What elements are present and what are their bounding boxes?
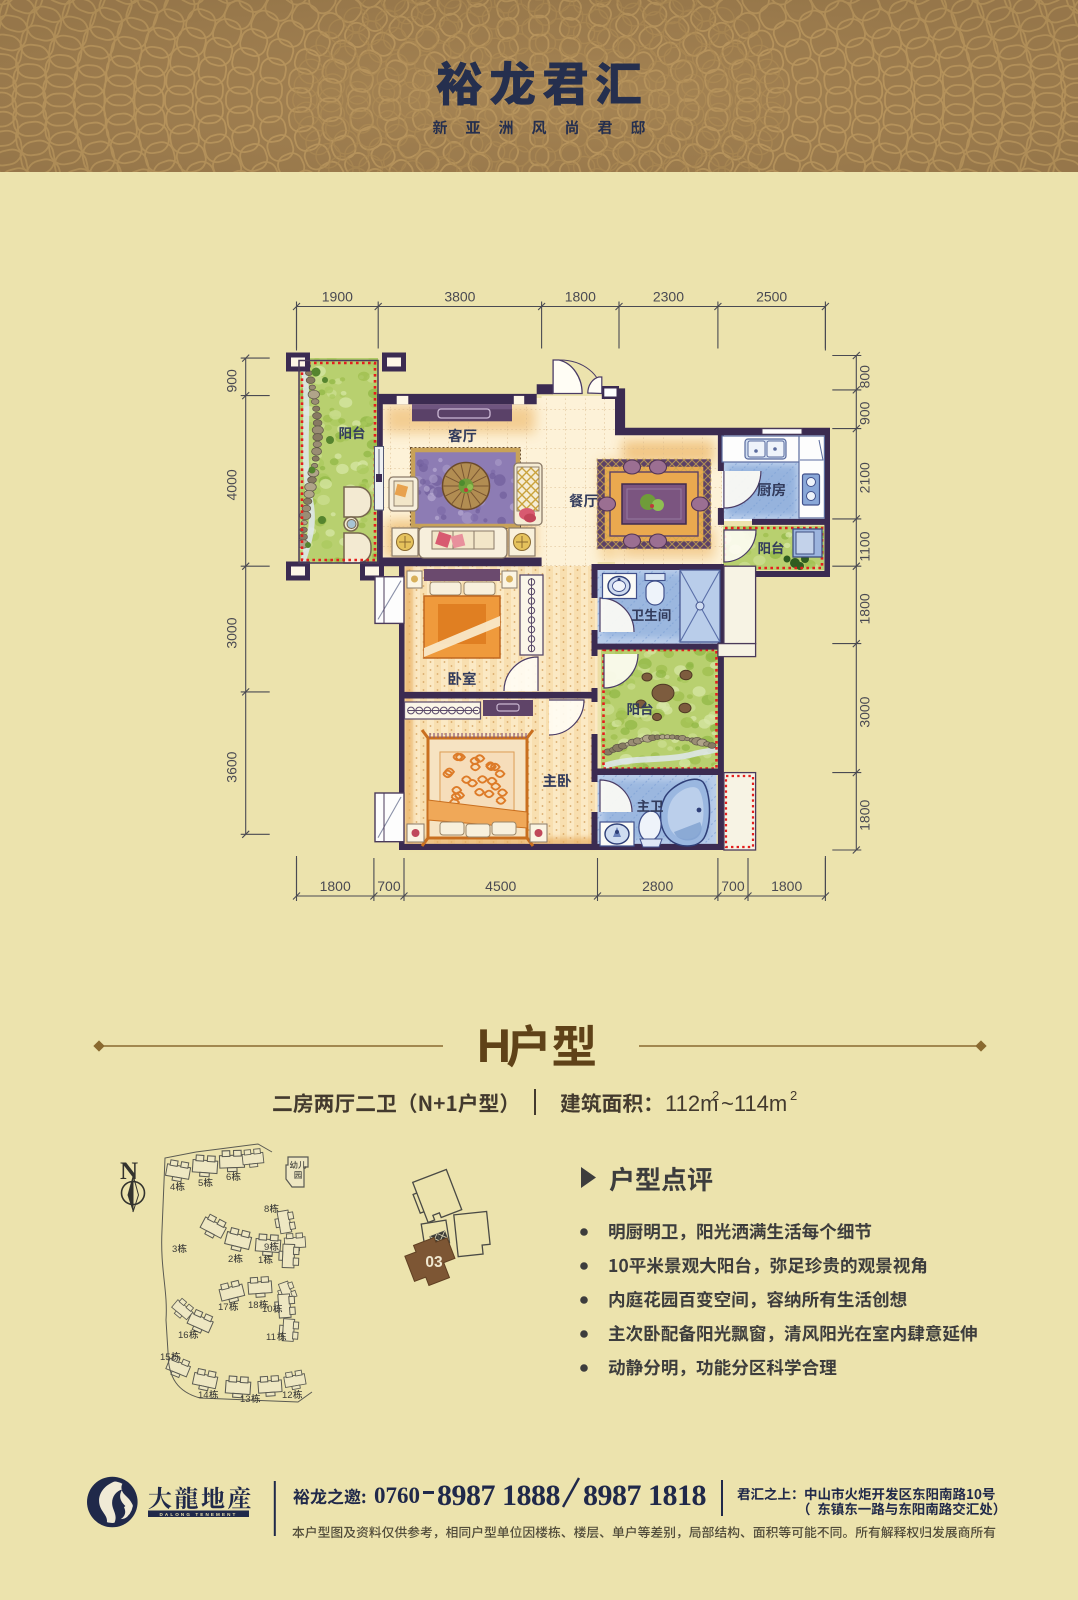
svg-text:8: 8 bbox=[264, 1204, 269, 1215]
svg-text:2500: 2500 bbox=[756, 289, 787, 305]
svg-text:H: H bbox=[477, 1019, 511, 1072]
svg-text:1900: 1900 bbox=[322, 289, 353, 305]
svg-text:14: 14 bbox=[198, 1390, 209, 1401]
svg-text:DALONG TENEMENT: DALONG TENEMENT bbox=[160, 1512, 238, 1517]
svg-text:4500: 4500 bbox=[485, 878, 516, 894]
svg-text:800: 800 bbox=[856, 365, 872, 389]
svg-text:~114m: ~114m bbox=[721, 1091, 787, 1116]
svg-text:900: 900 bbox=[856, 401, 872, 425]
svg-text:5: 5 bbox=[198, 1178, 203, 1189]
svg-text:1: 1 bbox=[258, 1255, 263, 1266]
svg-text:12: 12 bbox=[282, 1390, 293, 1401]
svg-text:13: 13 bbox=[240, 1394, 251, 1405]
svg-text:700: 700 bbox=[721, 878, 745, 894]
svg-text:0760: 0760 bbox=[374, 1483, 420, 1508]
svg-text:700: 700 bbox=[377, 878, 401, 894]
svg-text:8987 1818: 8987 1818 bbox=[583, 1479, 706, 1512]
svg-text:1800: 1800 bbox=[771, 878, 802, 894]
svg-text:1800: 1800 bbox=[565, 289, 596, 305]
svg-text:16: 16 bbox=[178, 1330, 189, 1341]
svg-text:4: 4 bbox=[170, 1182, 175, 1193]
svg-text:2: 2 bbox=[228, 1254, 233, 1265]
svg-text:9: 9 bbox=[264, 1242, 269, 1253]
svg-text:8987 1888: 8987 1888 bbox=[437, 1479, 560, 1512]
svg-text:2: 2 bbox=[712, 1088, 719, 1103]
svg-text:2100: 2100 bbox=[856, 462, 872, 493]
svg-text:3: 3 bbox=[172, 1244, 177, 1255]
svg-text:2: 2 bbox=[790, 1088, 797, 1103]
svg-text:3000: 3000 bbox=[224, 617, 240, 648]
svg-text:1800: 1800 bbox=[320, 878, 351, 894]
svg-text:3800: 3800 bbox=[444, 289, 475, 305]
svg-text:1800: 1800 bbox=[856, 800, 872, 831]
svg-text:4000: 4000 bbox=[224, 469, 240, 500]
svg-text:15: 15 bbox=[160, 1352, 171, 1363]
svg-text:1800: 1800 bbox=[856, 593, 872, 624]
svg-text:3600: 3600 bbox=[224, 751, 240, 782]
svg-text:10: 10 bbox=[262, 1304, 273, 1315]
svg-text:3000: 3000 bbox=[856, 696, 872, 727]
svg-text:2300: 2300 bbox=[653, 289, 684, 305]
svg-text:900: 900 bbox=[224, 369, 240, 393]
svg-text:17: 17 bbox=[218, 1302, 229, 1313]
svg-text:18: 18 bbox=[248, 1300, 259, 1311]
svg-text:6: 6 bbox=[226, 1172, 231, 1183]
svg-text:03: 03 bbox=[425, 1254, 443, 1271]
svg-text:2800: 2800 bbox=[642, 878, 673, 894]
svg-text:112m: 112m bbox=[665, 1091, 718, 1116]
svg-text:11: 11 bbox=[266, 1332, 276, 1343]
svg-text:1100: 1100 bbox=[856, 531, 872, 561]
